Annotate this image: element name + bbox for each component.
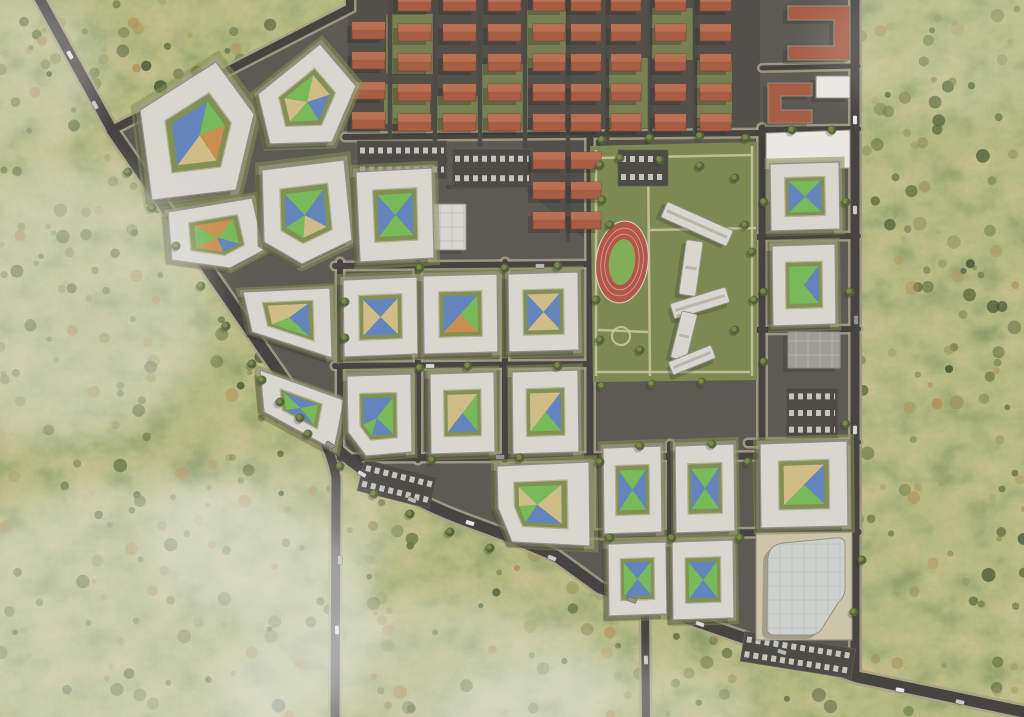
scene-svg: Aerial bird's-eye render of a residentia… [0,0,1024,717]
grade-layer [0,0,1024,717]
masterplan-aerial-render: Aerial bird's-eye render of a residentia… [0,0,1024,717]
color-grade-overlay [0,0,1024,717]
